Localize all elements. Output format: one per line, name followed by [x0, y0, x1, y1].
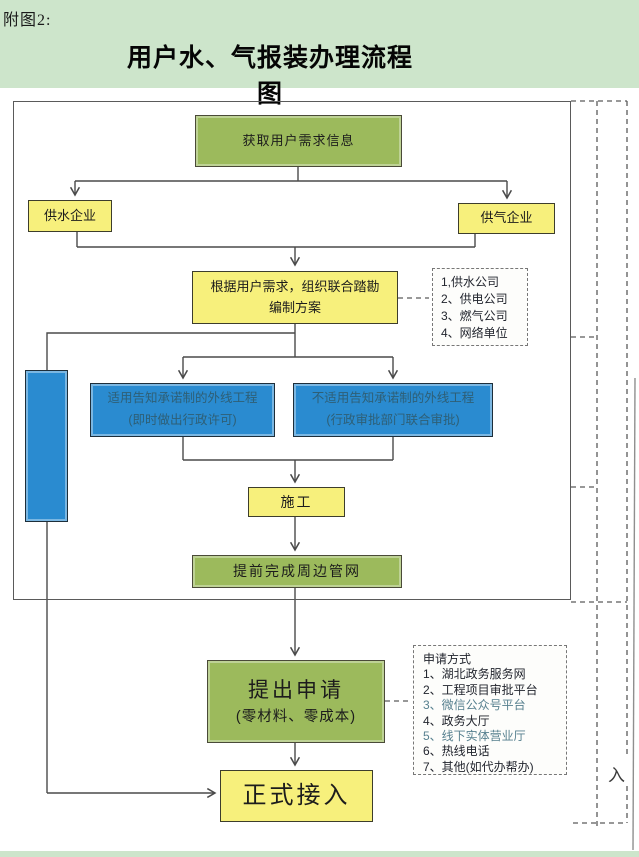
note-item: 2、工程项目审批平台 — [423, 683, 566, 698]
blue-vertical-bar — [25, 370, 68, 522]
note-item: 7、其他(如代办帮办) — [423, 760, 566, 775]
node-label-line2: (零材料、零成本) — [236, 707, 356, 728]
node-label: 供气企业 — [480, 209, 532, 228]
node-acquire-demand: 获取用户需求信息 — [195, 115, 402, 167]
note-item: 1、湖北政务服务网 — [423, 667, 566, 682]
node-water-company: 供水企业 — [28, 200, 112, 232]
node-gas-company: 供气企业 — [458, 203, 555, 234]
scanned-page: 附图2: 用户水、气报装办理流程图 — [0, 0, 639, 857]
figure-tag: 附图2: — [3, 6, 51, 30]
page-bottom-margin — [0, 851, 639, 857]
note-item: 4、网络单位 — [441, 325, 527, 342]
note-title: 申请方式 — [423, 652, 566, 667]
page-title: 用户水、气报装办理流程图 — [117, 38, 423, 110]
node-label-line1: 适用告知承诺制的外线工程 — [107, 388, 257, 410]
node-promise-project: 适用告知承诺制的外线工程 (即时做出行政许可) — [90, 383, 275, 437]
note-item: 4、政务大厅 — [423, 714, 566, 729]
note-item: 3、燃气公司 — [441, 308, 527, 325]
node-construction: 施工 — [248, 487, 345, 517]
node-label-line2: (即时做出行政许可) — [128, 410, 236, 432]
flowchart-border — [13, 101, 571, 600]
page-edge-line — [633, 378, 635, 850]
node-label: 施工 — [281, 492, 313, 512]
node-label: 供水企业 — [44, 207, 96, 226]
node-label-line2: 编制方案 — [269, 298, 321, 319]
note-item: 5、线下实体营业厅 — [423, 729, 566, 744]
node-label: 获取用户需求信息 — [242, 132, 354, 151]
node-label: 正式接入 — [243, 779, 351, 814]
node-label: 提前完成周边管网 — [233, 561, 361, 581]
node-label-line1: 根据用户需求，组织联合踏勘 — [210, 277, 379, 298]
note-item: 3、微信公众号平台 — [423, 698, 566, 713]
node-pipeline-complete: 提前完成周边管网 — [192, 555, 402, 588]
note-apply-methods: 申请方式 1、湖北政务服务网 2、工程项目审批平台 3、微信公众号平台 4、政务… — [413, 645, 567, 775]
node-joint-survey: 根据用户需求，组织联合踏勘 编制方案 — [192, 271, 398, 324]
note-item: 2、供电公司 — [441, 291, 527, 308]
node-no-promise-project: 不适用告知承诺制的外线工程 (行政审批部门联合审批) — [293, 383, 493, 437]
node-submit-apply: 提出申请 (零材料、零成本) — [207, 660, 385, 743]
node-label-line1: 提出申请 — [248, 675, 344, 707]
note-item: 1,供水公司 — [441, 274, 527, 291]
note-joint-units: 1,供水公司 2、供电公司 3、燃气公司 4、网络单位 — [432, 268, 528, 346]
node-label-line2: (行政审批部门联合审批) — [326, 410, 459, 432]
node-label-line1: 不适用告知承诺制的外线工程 — [312, 388, 475, 410]
node-formal-access: 正式接入 — [220, 770, 373, 822]
note-item: 6、热线电话 — [423, 744, 566, 759]
margin-character: 入 — [608, 761, 625, 786]
